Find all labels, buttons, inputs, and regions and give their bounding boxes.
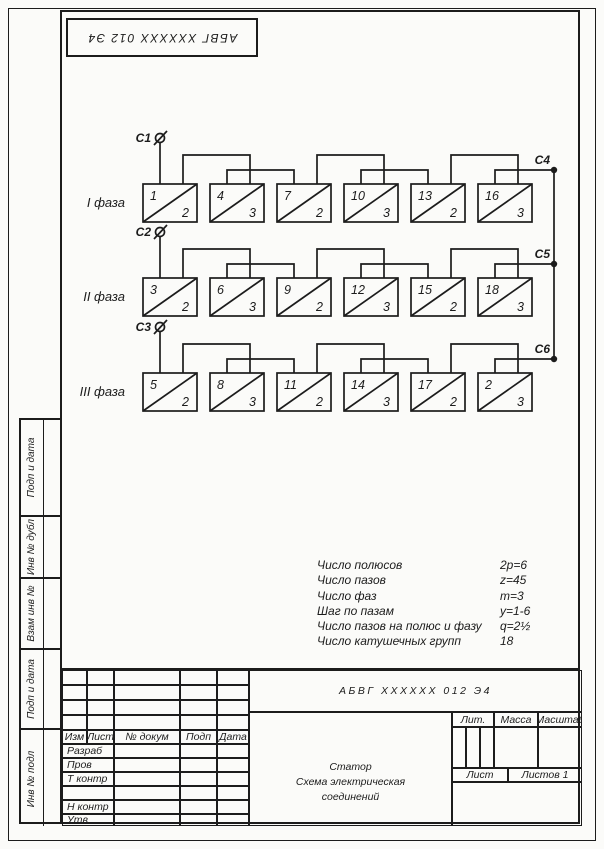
- massa-header: Масса: [494, 712, 538, 727]
- signature-name-cell: [114, 814, 180, 826]
- doc-name-line: Статор: [329, 760, 371, 775]
- doc-name-line: соединений: [322, 790, 380, 805]
- coil-count: 3: [249, 395, 256, 409]
- scanned-drawing-page: { "stamp": { "designation": "АБВГ ХХХХХХ…: [0, 0, 604, 849]
- coil-count: 3: [383, 300, 390, 314]
- role-cell: Н контр: [62, 800, 114, 814]
- coil-count: 2: [449, 395, 457, 409]
- coil-count: 3: [383, 206, 390, 220]
- change-table-header: Изм: [62, 730, 87, 744]
- parameter-value: q=2½: [500, 619, 530, 633]
- parameter-row: Число катушечных групп18: [317, 634, 567, 649]
- lit-value-cell: [466, 727, 480, 768]
- parameter-row: Число пазовz=45: [317, 573, 567, 588]
- change-table-header: № докум: [114, 730, 180, 744]
- parameter-name: Число полюсов: [317, 558, 402, 572]
- parameter-value: m=3: [500, 589, 524, 603]
- organization-cell: [452, 782, 582, 826]
- parameter-name: Число пазов: [317, 573, 386, 587]
- change-table-cell: [114, 715, 180, 730]
- group-number: 7: [284, 189, 292, 203]
- change-table-header: Подп: [180, 730, 217, 744]
- lit-value-cell: [480, 727, 494, 768]
- margin-cell-podp-i-data-2: Подп и дата: [21, 650, 60, 730]
- change-table-cell: [87, 715, 114, 730]
- parameter-value: y=1-6: [500, 604, 530, 618]
- phase-row: I фазаC1124372103132163C4: [87, 131, 557, 222]
- change-table-cell: [62, 685, 87, 700]
- change-table-cell: [217, 715, 249, 730]
- signature-name-cell: [114, 786, 180, 800]
- signature-podp-cell: [180, 800, 217, 814]
- signature-podp-cell: [180, 786, 217, 800]
- margin-cell-inv-podl: Инв № подл: [21, 730, 60, 826]
- change-table-cell: [62, 670, 87, 685]
- change-table-cell: [217, 685, 249, 700]
- coil-count: 3: [383, 395, 390, 409]
- change-table-cell: [62, 700, 87, 715]
- list-cell: Лист: [452, 768, 508, 782]
- coil-count: 3: [249, 206, 256, 220]
- signature-data-cell: [217, 772, 249, 786]
- change-table-cell: [87, 670, 114, 685]
- change-table-cell: [114, 700, 180, 715]
- document-name-cell: Статор Схема электрическая соединений: [249, 712, 452, 826]
- lit-header: Лит.: [452, 712, 494, 727]
- parameter-value: 18: [500, 634, 513, 648]
- change-table-cell: [180, 715, 217, 730]
- signature-name-cell: [114, 772, 180, 786]
- coil-count: 2: [181, 395, 189, 409]
- parameter-row: Число полюсов2p=6: [317, 558, 567, 573]
- margin-label: Подп и дата: [21, 650, 43, 728]
- group-number: 2: [484, 378, 492, 392]
- title-block: ИзмЛист№ докумПодпДатаРазрабПровТ контрН…: [60, 668, 580, 824]
- change-table-cell: [87, 685, 114, 700]
- signature-name-cell: [114, 744, 180, 758]
- signature-data-cell: [217, 814, 249, 826]
- change-table-cell: [180, 670, 217, 685]
- group-number: 9: [284, 283, 291, 297]
- parameter-row: Шаг по пазамy=1-6: [317, 604, 567, 619]
- margin-cell-podp-i-data: Подп и дата: [21, 420, 60, 517]
- role-cell: Разраб: [62, 744, 114, 758]
- phase-row: II фазаC2326392123152183C5: [83, 225, 557, 316]
- group-number: 16: [485, 189, 499, 203]
- margin-cell-inv-dubl: Инв № дубл: [21, 517, 60, 579]
- coil-count: 3: [517, 206, 524, 220]
- connection-wire: [361, 170, 428, 184]
- group-number: 1: [150, 189, 157, 203]
- margin-label: Взам инв №: [21, 579, 43, 648]
- change-table-cell: [87, 700, 114, 715]
- coil-count: 2: [181, 206, 189, 220]
- group-number: 13: [418, 189, 432, 203]
- change-table-cell: [180, 685, 217, 700]
- connection-wire: [361, 264, 428, 278]
- role-cell: Пров: [62, 758, 114, 772]
- signature-podp-cell: [180, 744, 217, 758]
- change-table-header: Лист: [87, 730, 114, 744]
- group-number: 4: [217, 189, 224, 203]
- signature-data-cell: [217, 800, 249, 814]
- coil-count: 3: [249, 300, 256, 314]
- signature-podp-cell: [180, 772, 217, 786]
- coil-count: 2: [181, 300, 189, 314]
- masshtab-value-cell: [538, 727, 582, 768]
- group-number: 10: [351, 189, 365, 203]
- group-number: 14: [351, 378, 365, 392]
- parameter-row: Число фазm=3: [317, 589, 567, 604]
- group-number: 8: [217, 378, 224, 392]
- change-table-cell: [217, 670, 249, 685]
- margin-strip: Подп и дата Инв № дубл Взам инв № Подп и…: [19, 418, 62, 824]
- parameter-name: Число катушечных групп: [317, 634, 461, 648]
- role-cell: Т контр: [62, 772, 114, 786]
- massa-value-cell: [494, 727, 538, 768]
- signature-data-cell: [217, 758, 249, 772]
- phase-label: II фаза: [83, 289, 125, 304]
- doc-name-line: Схема электрическая: [296, 775, 405, 790]
- group-number: 5: [150, 378, 157, 392]
- coil-count: 3: [517, 300, 524, 314]
- margin-cell-vzam-inv: Взам инв №: [21, 579, 60, 650]
- listov-cell: Листов 1: [508, 768, 582, 782]
- connection-wire: [227, 170, 294, 184]
- group-number: 17: [418, 378, 433, 392]
- designation-text: АБВГ ХХХХХХ 012 Э4: [339, 685, 492, 697]
- group-number: 15: [418, 283, 432, 297]
- terminal-label: C3: [136, 320, 152, 334]
- change-table-cell: [114, 685, 180, 700]
- signature-data-cell: [217, 744, 249, 758]
- star-terminal-label: C5: [535, 247, 551, 261]
- group-number: 11: [284, 378, 297, 392]
- connection-wire: [361, 359, 428, 373]
- parameter-name: Шаг по пазам: [317, 604, 394, 618]
- star-terminal-label: C4: [535, 153, 551, 167]
- connection-wire: [227, 359, 294, 373]
- change-table-cell: [180, 700, 217, 715]
- group-number: 6: [217, 283, 224, 297]
- star-lead-wire: [495, 264, 554, 278]
- change-table-cell: [62, 715, 87, 730]
- star-lead-wire: [495, 170, 554, 184]
- parameter-name: Число пазов на полюс и фазу: [317, 619, 482, 633]
- star-lead-wire: [495, 359, 554, 373]
- change-table-cell: [217, 700, 249, 715]
- coil-count: 2: [315, 395, 323, 409]
- star-terminal-label: C6: [535, 342, 551, 356]
- group-number: 18: [485, 283, 499, 297]
- margin-label: Инв № дубл: [21, 517, 43, 577]
- signature-name-cell: [114, 758, 180, 772]
- coil-count: 2: [315, 206, 323, 220]
- coil-count: 2: [315, 300, 323, 314]
- phase-row: III фазаC3528311214317223C6: [80, 320, 558, 411]
- phase-label: I фаза: [87, 195, 125, 210]
- parameter-row: Число пазов на полюс и фазуq=2½: [317, 619, 567, 634]
- coil-count: 2: [449, 300, 457, 314]
- change-table-header: Дата: [217, 730, 249, 744]
- change-table-cell: [114, 670, 180, 685]
- phase-label: III фаза: [80, 384, 125, 399]
- connection-wire: [227, 264, 294, 278]
- role-cell: [62, 786, 114, 800]
- parameter-value: 2p=6: [500, 558, 527, 572]
- terminal-label: C2: [136, 225, 152, 239]
- masshtab-header: Масштаб: [538, 712, 582, 727]
- terminal-label: C1: [136, 131, 152, 145]
- signature-podp-cell: [180, 758, 217, 772]
- coil-count: 2: [449, 206, 457, 220]
- group-number: 12: [351, 283, 365, 297]
- parameter-value: z=45: [500, 573, 526, 587]
- signature-name-cell: [114, 800, 180, 814]
- margin-label: Инв № подл: [21, 732, 43, 826]
- winding-parameters: Число полюсов2p=6Число пазовz=45Число фа…: [317, 558, 567, 650]
- designation-cell: АБВГ ХХХХХХ 012 Э4: [249, 670, 582, 712]
- lit-value-cell: [452, 727, 466, 768]
- parameter-name: Число фаз: [317, 589, 377, 603]
- group-number: 3: [150, 283, 157, 297]
- signature-podp-cell: [180, 814, 217, 826]
- coil-count: 3: [517, 395, 524, 409]
- signature-data-cell: [217, 786, 249, 800]
- margin-label: Подп и дата: [21, 420, 43, 515]
- role-cell: Утв: [62, 814, 114, 826]
